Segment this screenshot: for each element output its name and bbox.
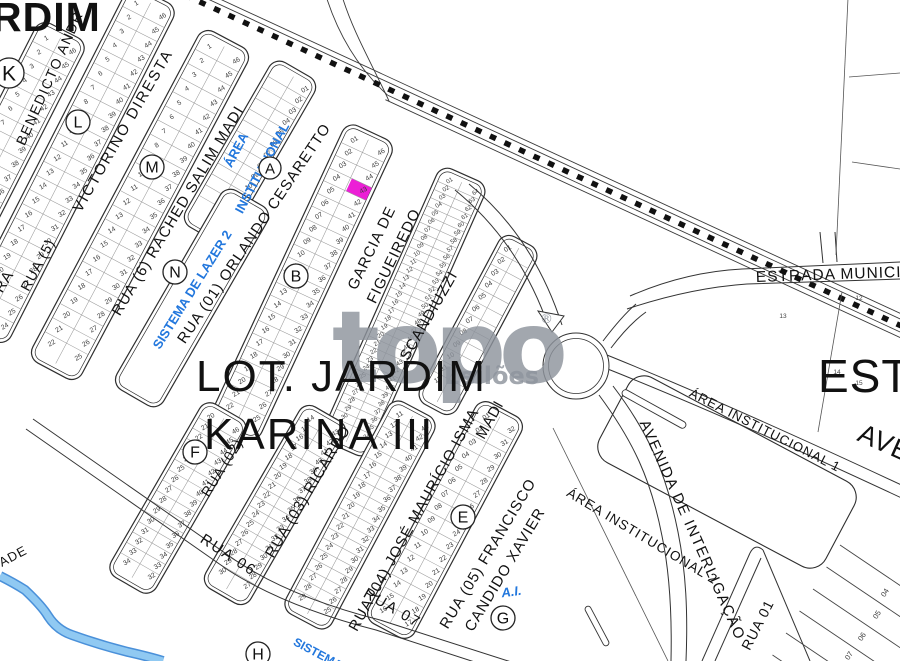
plat-map: 1462453444435426417408399381037113612351… <box>0 0 900 661</box>
svg-text:G: G <box>497 611 509 628</box>
block-letter-n: N <box>163 260 187 284</box>
corner-lot-number-2: 06 <box>856 631 868 643</box>
plat-map-page: 1462453444435426417408399381037113612351… <box>0 0 900 661</box>
svg-text:M: M <box>145 160 158 177</box>
boundary-number-0: 12 <box>855 295 863 302</box>
svg-text:H: H <box>252 647 264 661</box>
svg-text:L: L <box>74 115 83 132</box>
corner-lot-number-3: 07 <box>843 650 855 661</box>
block-letter-b: B <box>284 264 308 288</box>
block-letter-k: K <box>0 58 24 88</box>
boundary-number-2: 14 <box>833 369 841 376</box>
svg-text:B: B <box>291 269 302 286</box>
blue-label-4: SISTEMA <box>291 635 345 661</box>
street-label-22: ADE <box>0 542 30 569</box>
svg-text:N: N <box>169 265 181 282</box>
corner-lot-number-1: 05 <box>871 609 883 621</box>
big-label-1: LOT. JARDIM <box>196 352 487 401</box>
boundary-number-1: 13 <box>779 313 787 320</box>
corner-lot-number-0: 04 <box>879 587 891 599</box>
block-letter-h: H <box>246 642 270 661</box>
block-letter-a: A <box>259 157 281 179</box>
block-letter-m: M <box>140 155 164 179</box>
svg-text:F: F <box>190 445 200 462</box>
boundary-number-3: 15 <box>855 380 863 387</box>
watermark-registered-icon: ® <box>540 312 553 327</box>
block-letter-e: E <box>451 505 475 529</box>
big-label-4: AVENIDA <box>854 418 900 496</box>
big-label-0: RDIM <box>0 0 101 40</box>
block-letter-g: G <box>491 606 515 630</box>
block-letter-f: F <box>183 440 207 464</box>
blue-label-3: A.I. <box>499 583 522 601</box>
big-label-3: EST <box>818 350 900 402</box>
svg-text:K: K <box>2 62 16 85</box>
block-letter-l: L <box>66 110 90 134</box>
svg-text:A: A <box>265 160 275 177</box>
svg-text:E: E <box>458 510 469 527</box>
street-label-18: ESTRADA MUNICIPAL <box>756 263 900 286</box>
